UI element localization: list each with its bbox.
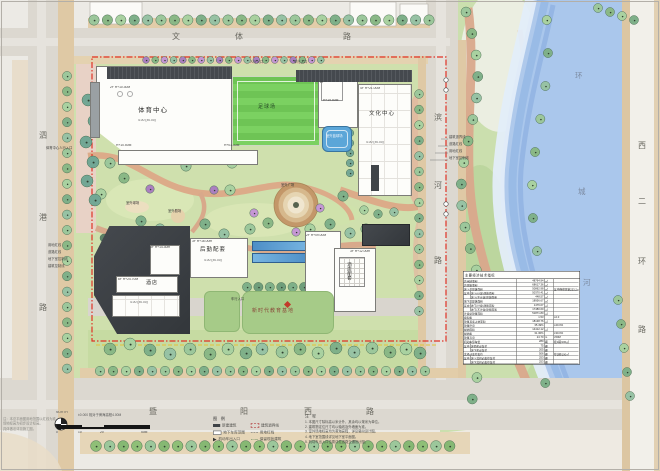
tree-icon: [415, 105, 424, 114]
legend-panel: 图 例新建建筑地下车库范围机动车出入口建筑退界线用地红线保留现状建筑: [213, 415, 303, 462]
tree-icon: [89, 15, 99, 25]
tree-icon: [415, 229, 424, 238]
tree-icon: [143, 57, 150, 64]
tree-icon: [102, 15, 112, 25]
tree-icon: [156, 15, 166, 25]
tree-icon: [467, 29, 477, 39]
tree-icon: [473, 72, 483, 82]
tree-icon: [116, 15, 126, 25]
road-label-char-left: 港: [39, 214, 47, 222]
road-label-char-left: 泗: [39, 132, 47, 140]
tree-icon: [407, 366, 417, 376]
river-label-char: 河: [583, 279, 591, 287]
tree-icon: [236, 15, 246, 25]
scale-tick-label: 0: [56, 431, 58, 434]
entrance-label: 车行入口: [231, 298, 244, 301]
tree-icon: [303, 15, 313, 25]
tree-icon: [210, 186, 218, 194]
tree-icon: [196, 15, 206, 25]
sports-center-west-wing: [90, 82, 100, 138]
road-label-char-right: 二: [638, 198, 646, 206]
tree-icon: [62, 302, 71, 311]
height-label: 3F H+12.00m: [350, 250, 370, 253]
tree-icon: [528, 213, 537, 222]
tree-icon: [346, 159, 354, 167]
tree-icon: [338, 191, 348, 201]
scale-tick-label: 10: [78, 431, 82, 434]
ne-annex-building: [318, 78, 358, 128]
stair-core: [371, 165, 379, 191]
tree-icon: [170, 57, 177, 64]
tree-icon: [330, 15, 340, 25]
tree-icon: [415, 136, 424, 145]
scale-tick-label: 20: [100, 431, 104, 434]
tree-icon: [105, 158, 115, 168]
tree-icon: [62, 272, 71, 281]
road-label-char-right: 环: [638, 258, 646, 266]
tree-icon: [472, 373, 482, 383]
boundary-annotation-left: 地下室控制线: [48, 258, 68, 261]
tree-icon: [316, 204, 324, 212]
economic-indicators-table: 主要经济技术指标总用地面积48764.94㎡总建筑面积68617.36㎡地上总建…: [463, 271, 581, 370]
tree-icon: [276, 15, 286, 25]
legend-label: 用地红线: [260, 431, 274, 435]
tree-icon: [390, 208, 399, 217]
tree-icon: [620, 344, 629, 353]
tree-icon: [62, 318, 71, 327]
basketball-court: [322, 126, 352, 152]
legend-symbol-corner-icon: [251, 424, 259, 428]
tree-icon: [292, 228, 300, 236]
tree-icon: [216, 57, 223, 64]
entrance-label: 车行入口: [294, 61, 307, 64]
theater-label: 室外剧场: [168, 210, 181, 213]
north-word: NORTH: [56, 411, 68, 414]
tree-icon: [415, 167, 424, 176]
tree-icon: [461, 7, 471, 17]
tree-icon: [381, 366, 391, 376]
tree-icon: [225, 366, 235, 376]
tree-icon: [62, 71, 71, 80]
river-label-char: 城: [578, 188, 586, 196]
hotel-support-building: [334, 248, 376, 312]
tree-icon: [618, 12, 627, 21]
tree-icon: [614, 296, 623, 305]
hotel-annex-building: [150, 245, 180, 275]
tree-icon: [271, 57, 278, 64]
tree-icon: [325, 219, 335, 229]
tree-icon: [119, 173, 129, 183]
tree-icon: [397, 15, 407, 25]
tree-icon: [264, 366, 274, 376]
tree-icon: [62, 225, 71, 234]
soccer-field: [232, 76, 320, 146]
boundary-annotation-right: 道路红线: [449, 143, 462, 146]
tree-icon: [121, 366, 131, 376]
tree-icon: [62, 287, 71, 296]
tree-icon: [415, 260, 424, 269]
tree-icon: [142, 15, 152, 25]
boundary-annotation-left: 道路红线: [48, 251, 61, 254]
sports-center-annex: [118, 150, 258, 165]
tree-icon: [62, 118, 71, 127]
tree-icon: [200, 219, 210, 229]
table-cell: [464, 360, 471, 364]
tree-icon: [415, 121, 424, 130]
tree-icon: [290, 366, 300, 376]
legend-label: 地下车库范围: [223, 431, 245, 435]
tree-icon: [360, 206, 369, 215]
tree-icon: [108, 366, 118, 376]
road-label-char-right: 路: [638, 326, 646, 334]
legend-label: 建筑退界线: [261, 424, 279, 428]
tree-icon: [303, 366, 313, 376]
tree-icon: [179, 57, 186, 64]
tree-icon: [532, 246, 541, 255]
tree-icon: [342, 366, 352, 376]
elevation-label: 4.00 (±0.00): [138, 119, 156, 122]
boundary-annotation-left: 用地红线: [48, 244, 61, 247]
tree-icon: [471, 93, 481, 103]
legend-label: 保留现状建筑: [260, 438, 282, 442]
entrance-label: 人行入口: [250, 61, 263, 64]
tree-icon: [134, 366, 144, 376]
tree-icon: [626, 392, 635, 401]
tree-icon: [415, 245, 424, 254]
height-label: 4F H+21.00M: [360, 87, 380, 90]
tree-icon: [62, 210, 71, 219]
pool-strip-2: [252, 253, 310, 263]
height-label: 2F: [320, 81, 324, 84]
tree-icon: [186, 366, 196, 376]
tree-icon: [62, 102, 71, 111]
tree-icon: [251, 366, 261, 376]
tree-icon: [457, 201, 467, 211]
height-label: H+01.30M: [224, 144, 239, 147]
tree-icon: [152, 57, 159, 64]
tree-icon: [62, 349, 71, 358]
tree-icon: [277, 366, 287, 376]
tree-icon: [465, 244, 475, 254]
tree-icon: [173, 366, 183, 376]
tree-icon: [62, 241, 71, 250]
tree-icon: [536, 114, 545, 123]
height-label: 6F H+24.70M: [118, 278, 138, 281]
skylight-icon: [127, 91, 133, 97]
tree-icon: [346, 169, 354, 177]
legend-label: 新建建筑: [222, 424, 236, 428]
tree-icon: [415, 307, 424, 316]
tree-icon: [467, 394, 477, 404]
tree-icon: [460, 222, 470, 232]
road-right: [630, 0, 654, 471]
table-cell: [554, 360, 579, 364]
tree-icon: [415, 152, 424, 161]
education-base-label: 新时代教育基地: [252, 309, 294, 314]
boundary-annotation-right: 用地红线: [449, 150, 462, 153]
boundary-annotation-left: 建筑控制线: [48, 265, 65, 268]
tree-icon: [245, 224, 255, 234]
tree-icon: [531, 147, 540, 156]
elevation-label: 4.00 (±0.00): [130, 301, 148, 304]
tree-icon: [263, 15, 273, 25]
tree-icon: [384, 15, 394, 25]
tree-icon: [528, 180, 537, 189]
tree-icon: [329, 366, 339, 376]
legend-item: 地下车库范围: [213, 430, 245, 437]
boundary-annotation-right: 建筑退界线: [449, 136, 466, 139]
legend-item: 用地红线: [251, 430, 282, 437]
road-label-char-top: 体: [235, 33, 243, 41]
road-label-char-mid: 滨: [434, 114, 442, 122]
tree-icon: [368, 366, 378, 376]
note-line: 5. 机动车出入口位置详见道路交通设计图。: [305, 440, 448, 445]
tree-icon: [606, 8, 615, 17]
hotel-support-label: 酒店配套: [347, 262, 352, 280]
tree-icon: [62, 195, 71, 204]
road-label-char-left: 路: [39, 304, 47, 312]
tree-icon: [62, 133, 71, 142]
tree-icon: [238, 366, 248, 376]
tree-icon: [308, 57, 315, 64]
table-cell: 辆: [545, 360, 554, 364]
height-label: H+10.50M: [116, 144, 131, 147]
tree-icon: [630, 16, 639, 25]
tree-icon: [189, 57, 196, 64]
courts-label: 室外球场: [126, 202, 139, 205]
basketball-court-label: 室外篮球场: [326, 135, 343, 138]
soccer-field-label: 足球场: [258, 105, 276, 110]
tree-icon: [262, 57, 269, 64]
elevation-label: 4.00 (±0.00): [204, 259, 222, 262]
tree-icon: [129, 15, 139, 25]
tree-icon: [594, 4, 603, 13]
tree-icon: [355, 366, 365, 376]
tree-icon: [223, 15, 233, 25]
tree-icon: [250, 15, 260, 25]
legend-item: 保留现状建筑: [251, 437, 282, 444]
legend-label: 机动车出入口: [218, 438, 240, 442]
legend-symbol-wave-icon: [251, 439, 258, 440]
tree-icon: [623, 368, 632, 377]
tree-icon: [394, 366, 404, 376]
circular-plaza: [274, 183, 318, 227]
tree-icon: [316, 366, 326, 376]
height-label: H+19.50M: [323, 99, 338, 102]
tree-icon: [374, 210, 383, 219]
tree-icon: [62, 164, 71, 173]
plaza-label: 室外广场: [281, 184, 294, 187]
tree-icon: [136, 216, 146, 226]
legend-item: 新建建筑: [213, 423, 245, 430]
tree-icon: [415, 291, 424, 300]
scale-tick-label: 50M: [141, 431, 147, 434]
tree-icon: [209, 15, 219, 25]
tree-icon: [250, 209, 258, 217]
tree-icon: [169, 15, 179, 25]
culture-center-roof-canopy: [296, 70, 412, 82]
tree-icon: [415, 198, 424, 207]
road-label-char-right: 西: [638, 142, 646, 150]
logistics-label: 后勤配套: [200, 248, 226, 254]
notes-panel: 注 释1. 本图尺寸除标高以米计外，其余均以毫米为单位。2. 建筑物定位尺寸均以…: [305, 414, 455, 471]
river-label-char: 环: [575, 72, 583, 80]
tree-icon: [183, 15, 193, 25]
elevation-label: 4.00 (±0.00): [366, 141, 384, 144]
tree-icon: [225, 57, 232, 64]
tree-icon: [317, 15, 327, 25]
tree-icon: [420, 366, 430, 376]
road-label-char-top: 路: [343, 33, 351, 41]
tree-icon: [290, 15, 300, 25]
tree-icon: [541, 378, 550, 387]
entrance-label: 体育中心人行入口: [46, 147, 72, 150]
tree-icon: [207, 57, 214, 64]
table-row: 地下非机动车停车位253辆: [464, 360, 580, 364]
road-label-char-top: 文: [172, 33, 180, 41]
tree-icon: [415, 183, 424, 192]
tree-icon: [343, 15, 353, 25]
site-plan-drawing: 体育中心 文化中心 后勤配套 酒店 酒店配套 新时代教育基地 足球场 室外篮球场…: [0, 0, 660, 471]
tree-icon: [212, 366, 222, 376]
legend-title: 图 例: [213, 415, 303, 423]
tree-icon: [62, 364, 71, 373]
tree-icon: [62, 333, 71, 342]
culture-center-label: 文化中心: [369, 112, 395, 118]
sculpture-marker-icon: [284, 301, 291, 308]
tree-icon: [415, 276, 424, 285]
tree-icon: [542, 15, 551, 24]
pool-strip-1: [252, 241, 310, 251]
tree-icon: [147, 366, 157, 376]
logistics-building: [190, 238, 248, 278]
tree-icon: [95, 366, 105, 376]
table-cell: 地下非机动车停车位: [471, 360, 517, 364]
road-label-char-mid: 河: [434, 182, 442, 190]
legend-symbol-dash-icon: [251, 432, 258, 433]
table-cell: 253: [517, 360, 545, 364]
tree-icon: [541, 81, 550, 90]
tree-icon: [161, 57, 168, 64]
hotel-building-lower: [112, 295, 180, 317]
sports-center-roof-canopy: [107, 67, 233, 79]
legend-item: 建筑退界线: [251, 423, 282, 430]
tree-icon: [263, 218, 273, 228]
tree-icon: [225, 185, 235, 195]
tree-icon: [471, 50, 481, 60]
boundary-annotation-right: 地下室控制线: [449, 157, 469, 160]
tree-icon: [281, 57, 288, 64]
annex-room: [321, 81, 343, 101]
north-arrow-icon: [54, 417, 68, 431]
tree-icon: [62, 179, 71, 188]
height-label: 2F H+09.00M: [306, 234, 326, 237]
ne-dark-building: [362, 224, 410, 246]
sports-center-label: 体育中心: [138, 108, 168, 115]
height-label: 2F H+10.30M: [110, 86, 130, 89]
tree-icon: [357, 15, 367, 25]
height-label: 3F H+14.30m: [150, 246, 170, 249]
hotel-label: 酒店: [146, 281, 158, 286]
tree-icon: [617, 320, 626, 329]
table-title: 主要经济技术指标: [464, 272, 580, 280]
tree-icon: [160, 366, 170, 376]
datum-note: ±0.000 相对于黄海高程4.00M: [78, 414, 121, 417]
tree-icon: [424, 15, 434, 25]
legend-item: 机动车出入口: [213, 437, 245, 444]
tree-icon: [468, 115, 478, 125]
road-label-char-mid: 路: [434, 257, 442, 265]
skylight-icon: [117, 91, 123, 97]
tree-icon: [198, 57, 205, 64]
tree-icon: [317, 57, 324, 64]
tree-icon: [62, 87, 71, 96]
tree-icon: [415, 214, 424, 223]
tree-icon: [415, 90, 424, 99]
tree-icon: [235, 57, 242, 64]
tree-icon: [345, 228, 355, 238]
height-label: 3F H+16.00m: [192, 240, 212, 243]
tree-icon: [199, 366, 209, 376]
tree-icon: [146, 185, 154, 193]
field-lines: [237, 81, 315, 141]
scalebar-block: NORTH ±0.000 相对于黄海高程4.00M 0102050M: [46, 408, 216, 442]
tree-icon: [543, 48, 552, 57]
tree-icon: [410, 15, 420, 25]
culture-center-building: [358, 84, 412, 196]
tree-icon: [370, 15, 380, 25]
tree-icon: [456, 179, 466, 189]
court-lines: [326, 130, 348, 148]
